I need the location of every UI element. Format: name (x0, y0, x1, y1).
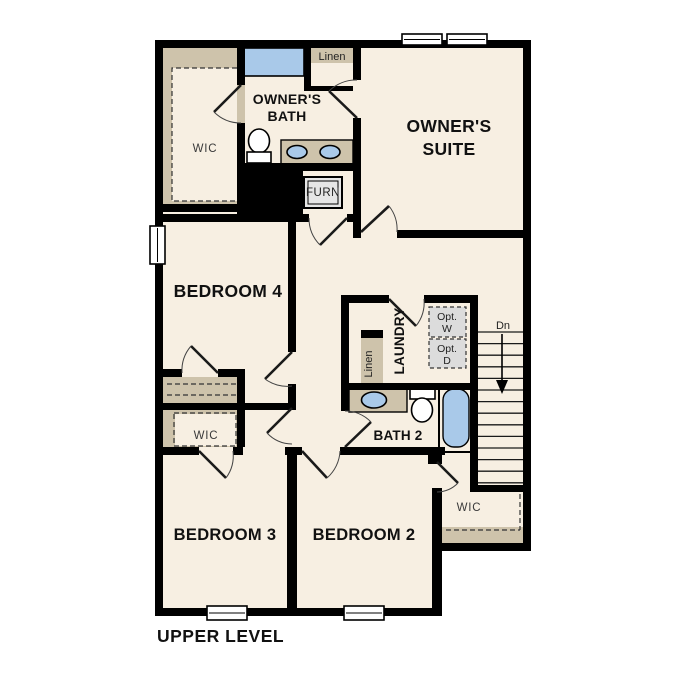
bath2-label: BATH 2 (374, 428, 423, 443)
wall-segment (237, 410, 245, 447)
wall-segment (340, 447, 445, 455)
bedroom4-label: BEDROOM 4 (174, 281, 283, 301)
wall-segment (304, 48, 311, 91)
bath2-sink (362, 392, 387, 408)
wall-segment (341, 295, 389, 303)
wall-segment (428, 455, 442, 464)
wall-segment (432, 543, 531, 551)
owners-toilet-tank (247, 152, 271, 163)
furnace-label: FURN (306, 187, 340, 199)
bath2-tub (443, 389, 469, 447)
wall-segment (523, 40, 531, 551)
bedroom3-wic-label: WIC (194, 430, 219, 442)
opt-washer-label: Opt. (437, 311, 457, 323)
floor-plan-drawing: OWNER'S BATH OWNER'S SUITE WIC Linen FUR… (0, 0, 687, 687)
wall-segment (296, 214, 309, 222)
bedroom3-label: BEDROOM 3 (174, 526, 277, 544)
owners-suite-label2: SUITE (422, 139, 475, 159)
bath2-toilet-bowl (412, 398, 433, 422)
wall-segment (155, 608, 442, 616)
owners-wic-label: WIC (193, 143, 218, 155)
bedroom2-wic-label: WIC (457, 502, 482, 514)
owners-sink-left (287, 146, 307, 159)
wall-segment (155, 40, 163, 616)
wall-segment (397, 230, 531, 238)
wall-segment (155, 204, 245, 212)
wall-segment (347, 214, 353, 222)
linen-upper-label: Linen (319, 51, 346, 63)
wall-segment (470, 295, 478, 492)
wall-segment (341, 295, 349, 411)
bedroom4-closet-shelf (163, 377, 245, 403)
wall-segment (353, 118, 361, 238)
wall-segment (155, 369, 182, 377)
owners-sink-right (320, 146, 340, 159)
owners-bath-label: OWNER'S (253, 91, 321, 107)
wall-segment (155, 447, 199, 455)
wall-segment (432, 488, 442, 616)
wall-segment (287, 455, 297, 616)
floor-plan-page: OWNER'S BATH OWNER'S SUITE WIC Linen FUR… (0, 0, 687, 687)
laundry-label: LAUNDRY (392, 308, 407, 375)
bedroom2-label: BEDROOM 2 (313, 526, 416, 544)
wall-segment (155, 403, 296, 410)
wall-segment (285, 447, 302, 455)
wall-segment (288, 222, 296, 352)
wall-segment (237, 163, 303, 222)
opt-dryer-label: Opt. (437, 343, 457, 355)
wall-segment (424, 295, 478, 303)
wall-segment (470, 485, 531, 492)
page-title: UPPER LEVEL (157, 626, 284, 646)
wall-segment (361, 330, 383, 338)
wall-segment (233, 447, 243, 455)
owners-wic-floor (172, 68, 237, 201)
wall-segment (303, 163, 361, 171)
owners-bath-label2: BATH (267, 108, 306, 124)
owners-shower (243, 48, 304, 76)
opt-dryer-label2: D (443, 355, 451, 367)
linen-hall-label: Linen (363, 351, 375, 378)
owners-toilet-bowl (249, 129, 270, 153)
owners-suite-label: OWNER'S (406, 116, 491, 136)
wall-segment (341, 383, 478, 390)
stairs-down-label: Dn (496, 320, 510, 332)
opt-washer-label2: W (442, 323, 452, 335)
wall-segment (353, 48, 361, 80)
wall-segment (237, 48, 245, 85)
